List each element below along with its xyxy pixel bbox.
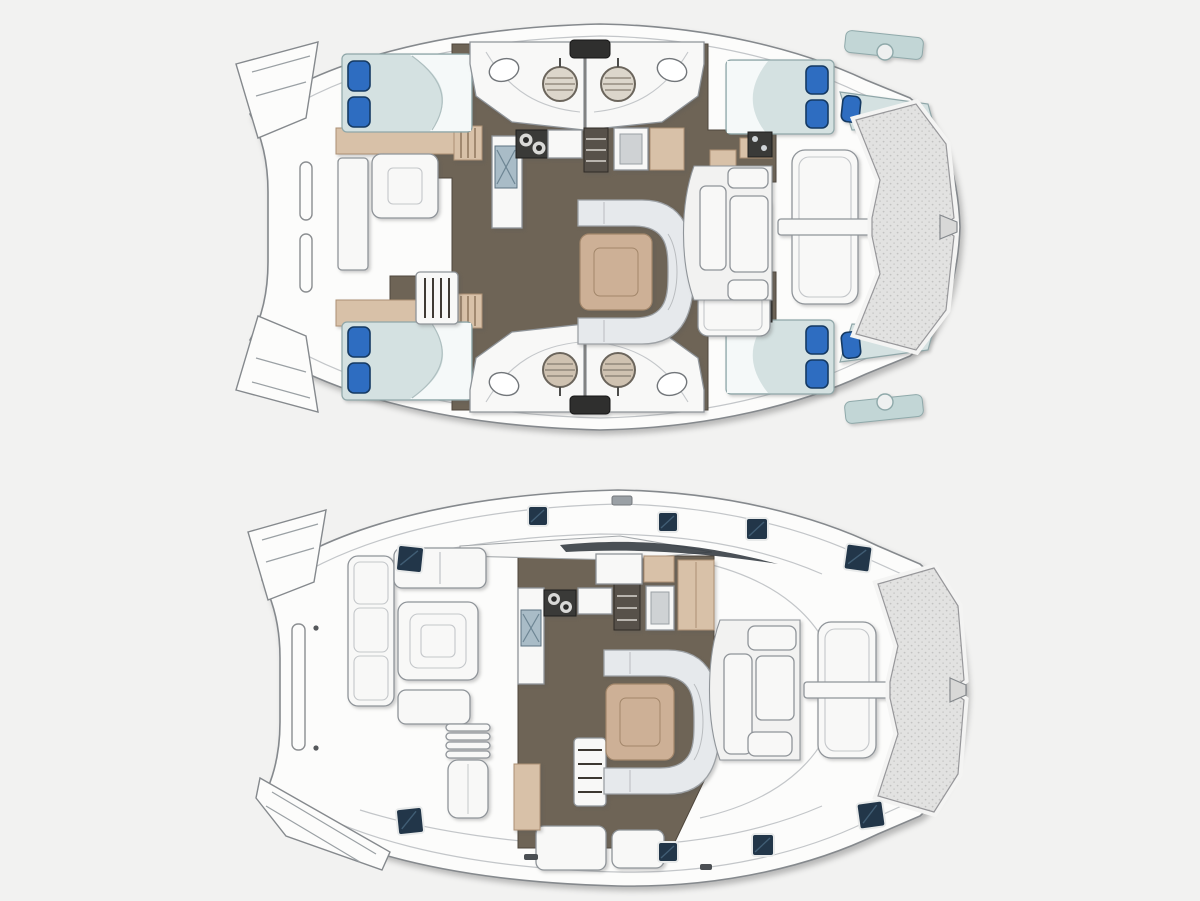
- pillow: [348, 61, 370, 91]
- seat-panel: [730, 196, 768, 272]
- rub-rail-mark: [700, 864, 712, 870]
- seat-cushion: [700, 186, 726, 270]
- galley-cabinet: [596, 554, 642, 584]
- fridge: [646, 586, 674, 630]
- seat-cushion: [728, 280, 768, 300]
- sideboard: [514, 764, 540, 830]
- companionway-hatch: [570, 40, 610, 58]
- bow-trampoline: [878, 568, 966, 812]
- forward-cockpit: [684, 166, 773, 300]
- cabin-port-aft: [336, 54, 482, 160]
- deck-hatch-round: [877, 394, 893, 410]
- vanity-sink: [748, 132, 772, 157]
- saloon: [604, 650, 720, 794]
- seat-cushion: [748, 732, 792, 756]
- walkway-strip: [778, 219, 876, 235]
- galley-cabinet: [650, 128, 684, 170]
- double-bed: [342, 322, 472, 400]
- companionway-hatch: [570, 396, 610, 414]
- pillow: [348, 327, 370, 357]
- deck-hatch: [856, 800, 885, 829]
- deck-vent: [612, 496, 632, 505]
- cockpit-bench: [398, 690, 470, 724]
- walkway-strip: [804, 682, 898, 698]
- hull-steps: [416, 272, 458, 324]
- pillow: [806, 326, 828, 354]
- deck-hatch: [843, 543, 872, 572]
- galley-sink: [521, 610, 541, 646]
- pillow: [348, 363, 370, 393]
- cockpit-sofa: [348, 556, 394, 706]
- galley-cabinet: [644, 556, 674, 582]
- galley-counter: [578, 588, 612, 614]
- cleat: [313, 745, 318, 750]
- saloon-table: [606, 684, 674, 760]
- double-bed: [342, 54, 472, 132]
- cockpit-table: [398, 602, 478, 680]
- seat-cushion: [728, 168, 768, 188]
- ottoman: [372, 154, 438, 218]
- saloon-table: [580, 234, 652, 310]
- pillow: [806, 66, 828, 94]
- rub-rail-mark: [524, 854, 538, 860]
- deck-hatch: [396, 807, 425, 836]
- seat-cushion: [748, 626, 796, 650]
- deck-hatch: [396, 545, 425, 574]
- pillow: [348, 97, 370, 127]
- fridge: [614, 128, 648, 170]
- catamaran-plans-svg: [0, 0, 1200, 901]
- pillow: [806, 100, 828, 128]
- hull-steps: [574, 738, 606, 806]
- companionway-steps: [584, 128, 608, 172]
- transom-seat: [536, 826, 606, 870]
- deck-hatch-round: [877, 44, 893, 60]
- bathrooms-forward: [470, 40, 704, 130]
- cabin-starboard-aft: [336, 294, 482, 400]
- sun-lounger: [446, 724, 490, 818]
- main-deck-plan: [248, 490, 966, 886]
- deck-plan-image: [0, 0, 1200, 901]
- galley-sink: [495, 146, 517, 188]
- transom-seat: [612, 830, 664, 868]
- seat-panel: [756, 656, 794, 720]
- companionway-steps: [614, 584, 640, 630]
- galley-counter: [548, 130, 582, 158]
- stove: [544, 590, 576, 616]
- lower-deck-plan: [236, 24, 960, 430]
- bow-trampoline: [856, 104, 957, 350]
- cleat: [313, 625, 318, 630]
- stove: [516, 130, 548, 158]
- cabinet: [338, 158, 368, 270]
- pillow: [806, 360, 828, 388]
- forward-cockpit: [710, 620, 801, 760]
